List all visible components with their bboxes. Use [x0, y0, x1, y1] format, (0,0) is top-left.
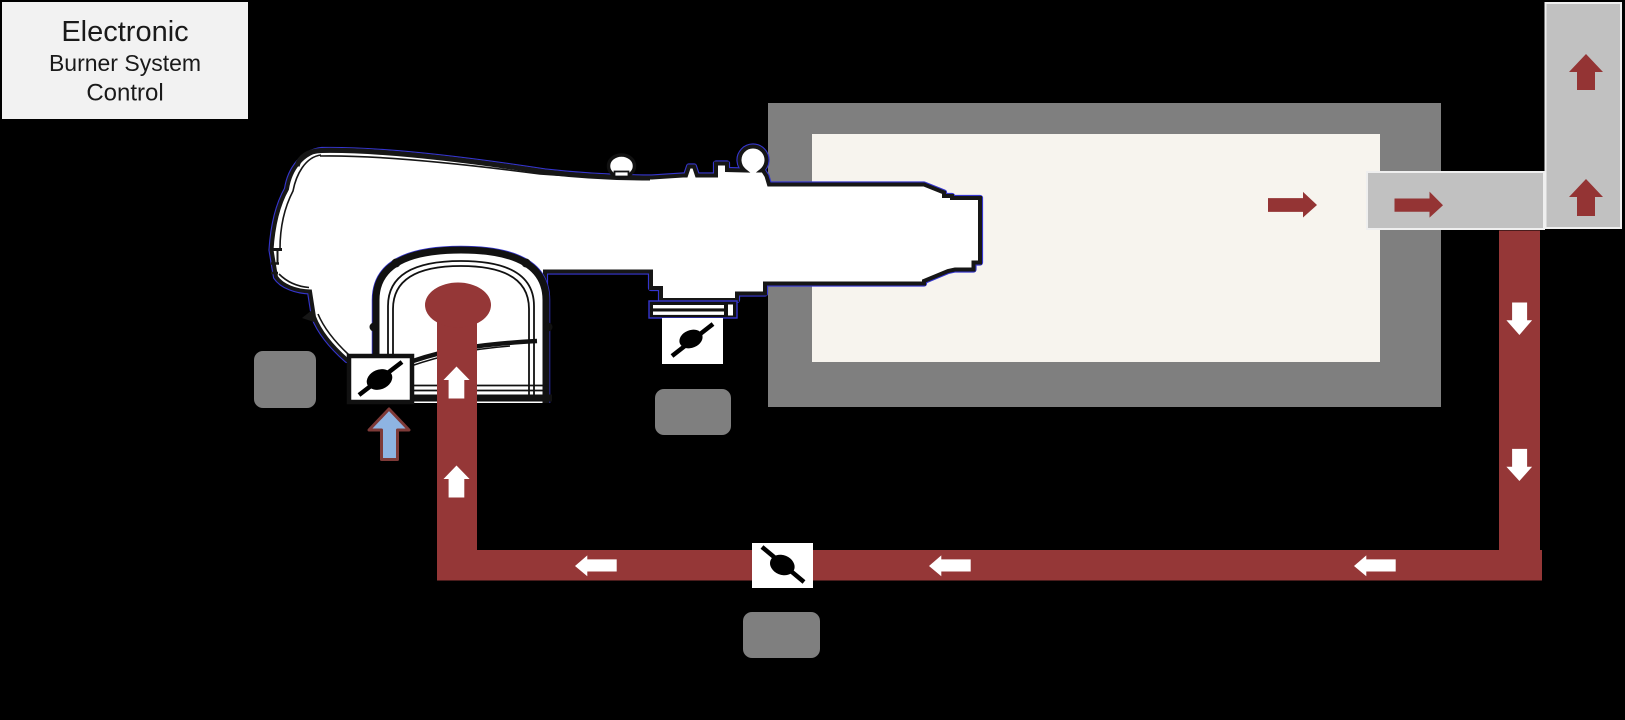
svg-text:Control: Control [86, 80, 163, 107]
svg-text:Burner System: Burner System [49, 50, 201, 76]
svg-text:Electronic: Electronic [61, 16, 188, 48]
